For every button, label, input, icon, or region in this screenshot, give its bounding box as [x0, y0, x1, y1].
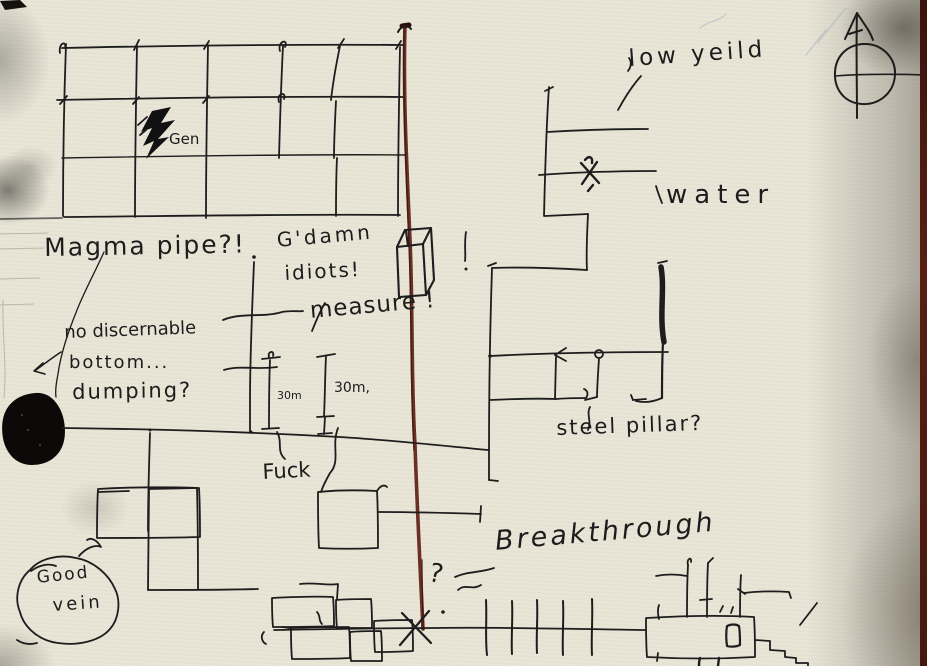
pillar-room-complex [488, 263, 668, 481]
depth-30m-large-label: 30m, [334, 381, 370, 395]
steel-pillar-icon [636, 261, 667, 402]
compass-rose-icon [835, 13, 925, 118]
water-hazard-x-icon [581, 157, 599, 191]
paper-right-edge [920, 0, 927, 666]
no-bottom-label-line2: bottom... [69, 354, 169, 372]
red-survey-line [398, 25, 423, 629]
room-cluster [262, 583, 413, 661]
good-vein-cloud [17, 539, 118, 644]
leader-lines [223, 58, 662, 590]
water-label: water [666, 182, 775, 208]
gen-label: Gen [169, 132, 199, 147]
grid-panel [0, 39, 406, 219]
no-bottom-label-line3: dumping? [72, 380, 192, 403]
no-bottom-label-line1: no discernable [64, 319, 197, 342]
water-corridors [492, 87, 656, 270]
good-vein-label-line2: vein [52, 594, 103, 615]
fuck-label: Fuck [262, 459, 311, 482]
magma-pipe-label: Magma pipe?! [44, 231, 246, 260]
corner-mark [0, 0, 27, 10]
steel-pillar-label: steel pillar? [556, 413, 704, 439]
depth-30m-small-label: 30m [277, 390, 302, 401]
fuck-room [318, 486, 481, 549]
paper-sheet: Gen low yeild water Magma pipe?! G'damn … [0, 0, 927, 666]
machine-room [646, 558, 817, 666]
stray-exclamation-mark [465, 232, 468, 271]
gdamn-label-line2: idiots! [284, 259, 361, 283]
square-rooms [97, 487, 258, 590]
pit-hole-icon [3, 394, 64, 464]
